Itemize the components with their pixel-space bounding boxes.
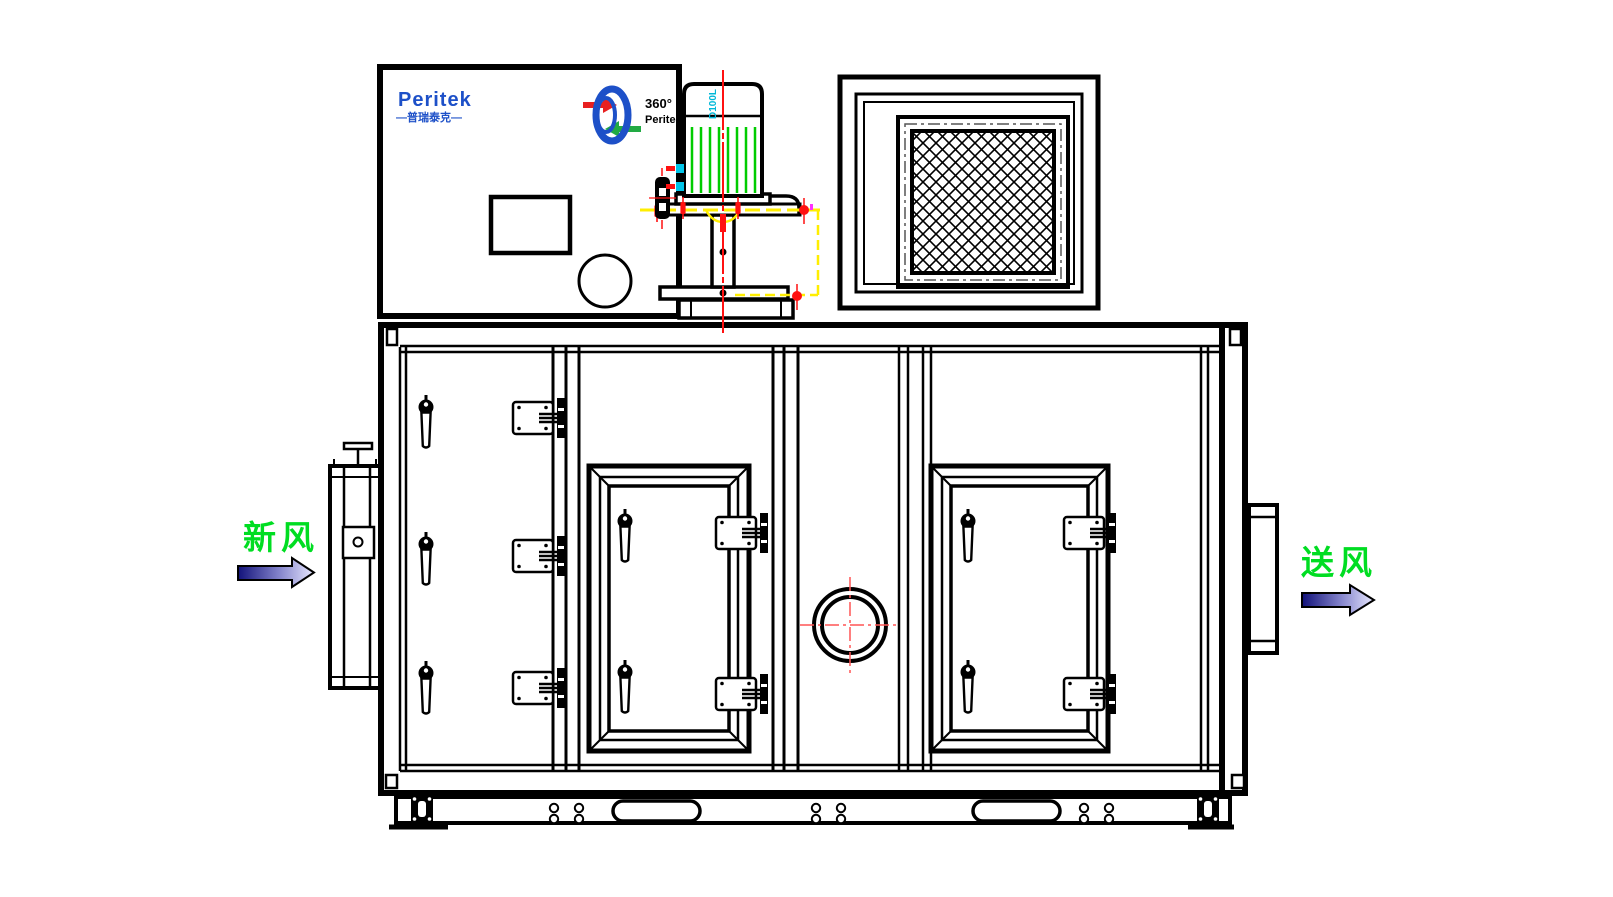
forklift-slot <box>613 801 700 821</box>
door-latch <box>716 674 768 714</box>
door-latch <box>716 513 768 553</box>
filter-mesh <box>912 131 1054 273</box>
fresh-air-annotation: 新风 <box>238 519 319 587</box>
base-frame <box>389 795 1234 827</box>
motor-pedestal <box>679 300 793 318</box>
peritek-logo: Peritek —普瑞泰克— <box>396 89 472 124</box>
panel-latch <box>513 668 565 708</box>
forklift-slot <box>973 801 1060 821</box>
supply-air-annotation: 送风 <box>1301 544 1377 615</box>
control-box: Peritek —普瑞泰克— 360° Peritek <box>380 67 683 316</box>
control-box-window <box>491 197 570 253</box>
fresh-air-arrow-icon <box>238 558 314 587</box>
drawing-canvas: Peritek —普瑞泰克— 360° Peritek <box>0 0 1613 897</box>
rotor-caption-bottom: Peritek <box>645 114 683 126</box>
door-middle <box>589 466 768 751</box>
outlet-flange <box>1249 505 1277 653</box>
peritek-logo-text: Peritek <box>398 89 472 111</box>
panel-latch <box>513 536 565 576</box>
base-foot-left <box>411 795 433 823</box>
panel-latch <box>513 398 565 438</box>
technical-drawing: Peritek —普瑞泰克— 360° Peritek <box>0 0 1613 897</box>
cabinet-body <box>381 325 1245 793</box>
base-foot-right <box>1197 795 1219 823</box>
supply-air-arrow-icon <box>1302 585 1374 615</box>
rotor-caption-top: 360° <box>645 96 672 111</box>
fresh-air-label: 新风 <box>243 519 319 556</box>
control-box-port <box>579 255 631 307</box>
mount-outline <box>735 210 818 295</box>
supply-air-label: 送风 <box>1301 544 1377 581</box>
inlet-flange <box>330 443 380 688</box>
door-right <box>931 466 1116 751</box>
filter-box <box>840 77 1098 308</box>
peritek-logo-subtext: —普瑞泰克— <box>396 110 462 124</box>
door-latch <box>1064 674 1116 714</box>
motor-frame-label: D100L <box>708 89 719 119</box>
door-latch <box>1064 513 1116 553</box>
